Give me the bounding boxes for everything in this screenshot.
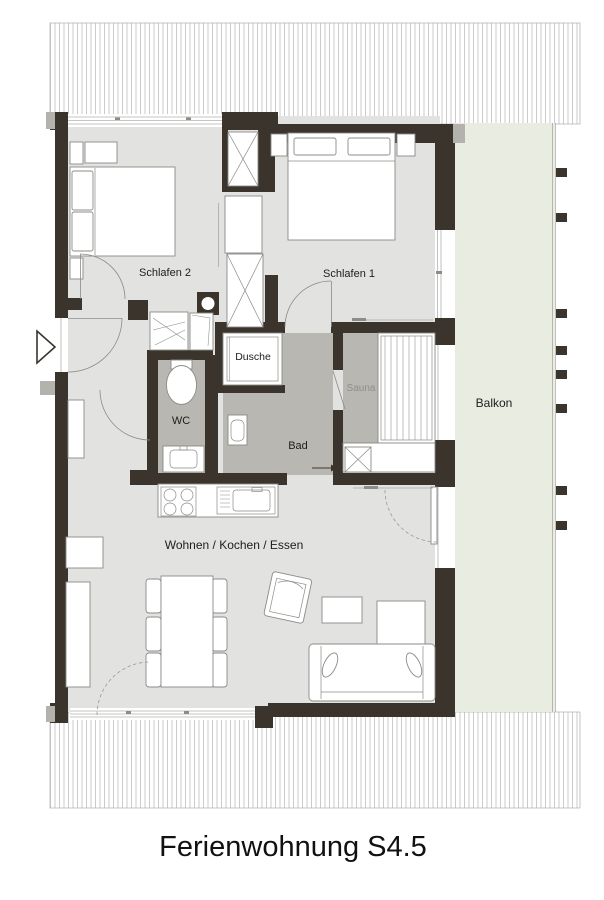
window-top <box>68 114 222 127</box>
chair <box>212 653 227 687</box>
bedroom1-furniture <box>271 133 415 240</box>
chair <box>212 617 227 651</box>
chair <box>212 579 227 613</box>
pillow <box>348 138 390 155</box>
nightstand <box>397 134 415 156</box>
window-right-bedroom <box>435 230 455 318</box>
chair <box>146 653 161 687</box>
duct-pillar-circle <box>202 297 215 310</box>
plan-caption: Ferienwohnung S4.5 <box>159 831 427 863</box>
balcony-door-leaf <box>431 487 437 544</box>
nightstand <box>271 134 287 156</box>
mirror-panel <box>190 313 213 350</box>
nightstand <box>70 142 83 164</box>
floor-plan-svg: Schlafen 2 Schlafen 1 Dusche WC Bad Saun… <box>0 0 604 900</box>
kitchen <box>158 484 278 517</box>
armchair <box>264 571 312 623</box>
floor-plan-page: Schlafen 2 Schlafen 1 Dusche WC Bad Saun… <box>0 0 604 900</box>
nightstand <box>70 258 83 279</box>
pillow <box>72 171 93 210</box>
coffee-table <box>322 597 362 623</box>
sideboard <box>66 582 90 687</box>
balcony <box>455 123 567 712</box>
sideboard <box>68 400 84 458</box>
pillow <box>294 138 336 155</box>
dresser <box>85 142 117 163</box>
sofa-chaise <box>377 601 425 648</box>
window-sauna-glass <box>433 345 455 440</box>
kitchen-counter <box>158 484 278 517</box>
room-label-bad: Bad <box>288 440 308 452</box>
window-bottom <box>70 708 255 720</box>
entrance-arrow <box>37 331 55 363</box>
dining-table <box>161 576 213 687</box>
room-label-sauna: Sauna <box>347 383 376 394</box>
chair <box>146 579 161 613</box>
room-label-schlafen1: Schlafen 1 <box>323 268 375 280</box>
toilet <box>167 366 197 405</box>
sideboard <box>66 537 103 568</box>
room-label-schlafen2: Schlafen 2 <box>139 267 191 279</box>
roof-hatch-bottom <box>50 712 580 808</box>
balcony-rail-ticks <box>556 168 567 530</box>
washer-cabinet <box>150 312 188 350</box>
entrance-opening <box>55 318 68 372</box>
wardrobe <box>225 196 262 253</box>
room-label-dusche: Dusche <box>235 351 271 363</box>
room-label-wohnen: Wohnen / Kochen / Essen <box>165 538 304 552</box>
sauna-benches <box>378 333 435 443</box>
room-label-wc: WC <box>172 415 190 427</box>
room-label-balkon: Balkon <box>476 396 513 410</box>
pillow <box>72 212 93 251</box>
chair <box>146 617 161 651</box>
roof-hatch-top <box>50 23 580 124</box>
